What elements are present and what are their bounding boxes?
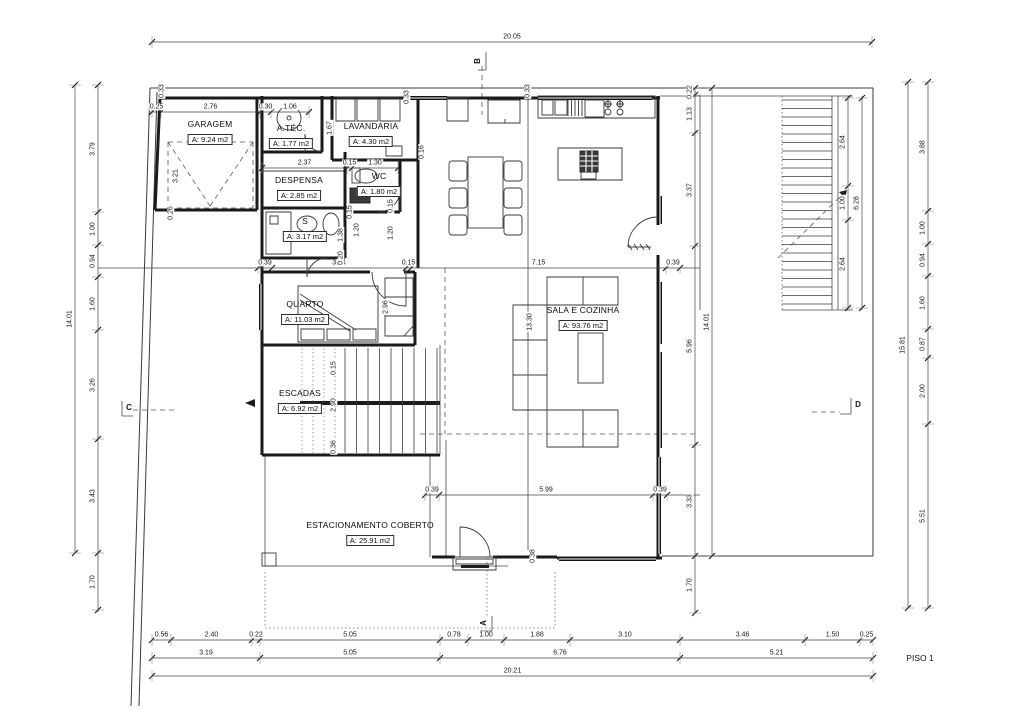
door-service: [307, 258, 327, 277]
dimension-label: 3.88: [919, 139, 926, 155]
dimension-label: 0.87: [919, 336, 926, 352]
room-name: WC: [357, 171, 401, 181]
door-entrance: [460, 527, 490, 557]
door-terrace: [628, 217, 658, 247]
fixtures-furniture: [245, 96, 847, 570]
dimension-label: 3.10: [617, 631, 633, 638]
room-area: A: 3.17 m2: [283, 231, 327, 242]
dimension-label: 2.40: [204, 631, 220, 638]
plot-boundary: [131, 88, 873, 706]
dimension-label: 0.36: [330, 439, 337, 455]
coffee-table: [578, 333, 603, 383]
dimension-label: 1.38: [337, 227, 344, 243]
dimension-label: 5.51: [919, 508, 926, 524]
dimension-label: 2.00: [919, 383, 926, 399]
room-label-escadas: ESCADASA: 6.92 m2: [278, 388, 322, 416]
room-area: A: 93.76 m2: [559, 320, 607, 331]
room-name: ESCADAS: [278, 388, 322, 398]
room-area: A: 9.24 m2: [188, 134, 232, 145]
dimension-label: 7.15: [531, 259, 547, 266]
room-name: A.TÉC.: [269, 123, 313, 133]
sheet-title: PISO 1: [906, 653, 933, 663]
dimension-label: 0.78: [446, 631, 462, 638]
section-marker-d: D: [854, 401, 862, 409]
dimension-label: 15.81: [899, 335, 906, 355]
room-label-quarto: QUARTOA: 11.03 m2: [281, 299, 329, 327]
dimension-label: 5.96: [686, 338, 693, 354]
dimension-label: 1.67: [326, 120, 333, 136]
dimension-label: 1.70: [89, 574, 96, 590]
dimension-label: 5.05: [342, 631, 358, 638]
room-name: ESTACIONAMENTO COBERTO: [306, 520, 434, 530]
dimension-label: 0.56: [154, 631, 170, 638]
entrance-step: [453, 557, 496, 570]
dimension-label: 14.01: [66, 309, 73, 329]
room-area: A: 4.30 m2: [349, 136, 393, 147]
room-area: A: 1.80 m2: [357, 186, 401, 197]
dimension-label: 0.22: [686, 84, 693, 100]
dimension-label: 1.00: [478, 631, 494, 638]
room-name: DESPENSA: [275, 175, 323, 185]
dimension-label: 1.50: [825, 631, 841, 638]
dimension-label: 1.20: [353, 222, 360, 238]
dimension-label: 1.13: [686, 106, 693, 122]
room-area: A: 11.03 m2: [281, 314, 329, 325]
dining-table: [468, 157, 503, 228]
dimension-label: 6.76: [552, 649, 568, 656]
dimension-label: 0.15: [342, 159, 358, 166]
room-label-wc: WCA: 1.80 m2: [357, 171, 401, 199]
dimension-label: 20.21: [503, 667, 523, 674]
dimension-label: 0.33: [158, 83, 165, 99]
dimension-label: 1.60: [89, 296, 96, 312]
dimension-label: 0.22: [248, 631, 264, 638]
dimension-label: 6.28: [853, 195, 860, 211]
dotted-lines: [265, 96, 782, 628]
room-name: S: [283, 216, 327, 226]
dimension-label: 0.39: [652, 486, 668, 493]
room-area: A: 25.91 m2: [346, 535, 394, 546]
room-area: A: 1.77 m2: [269, 138, 313, 149]
dimension-label: 2.96: [382, 299, 389, 315]
dimension-label: 0.15: [401, 259, 417, 266]
dimension-label: 3.26: [89, 377, 96, 393]
room-label-garagem: GARAGEMA: 9.24 m2: [188, 119, 233, 147]
dimension-label: 1.00: [919, 220, 926, 236]
dimension-label: 3.33: [686, 493, 693, 509]
dimension-label: 14.01: [703, 312, 710, 332]
dimension-label: 0.15: [387, 198, 394, 214]
sofa-set: [513, 277, 618, 447]
dimension-label: 3.43: [89, 488, 96, 504]
dimension-label: 0.26: [167, 205, 174, 221]
dimension-label: 0.39: [665, 259, 681, 266]
section-marker-a: A: [480, 619, 488, 627]
dimension-label: 0.39: [257, 259, 273, 266]
dimension-label: 0.25: [859, 631, 875, 638]
dimension-label: 20.05: [502, 33, 522, 40]
dimension-label: 1.20: [387, 225, 394, 241]
room-label-a-t-c: A.TÉC.A: 1.77 m2: [269, 123, 313, 151]
room-label-sala-e-cozinha: SALA E COZINHAA: 93.76 m2: [547, 305, 620, 333]
section-marker-c: C: [125, 404, 133, 412]
dimension-label: 1.88: [529, 631, 545, 638]
room-name: QUARTO: [281, 299, 329, 309]
dimension-label: 1.00: [89, 221, 96, 237]
room-label-lavandaria: LAVANDARIAA: 4.30 m2: [344, 121, 399, 149]
room-name: SALA E COZINHA: [547, 305, 620, 315]
room-label-estacionamento-coberto: ESTACIONAMENTO COBERTOA: 25.91 m2: [306, 520, 434, 548]
dimension-label: 1.60: [919, 295, 926, 311]
dimension-label: 0.30: [258, 103, 274, 110]
dashed-lines: [133, 66, 847, 434]
room-area: A: 2.85 m2: [277, 190, 321, 201]
dimension-label: 0.25: [149, 103, 165, 110]
dimension-label: 5.05: [342, 649, 358, 656]
dimension-label: 0.38: [529, 548, 536, 564]
dimension-label: 1.30: [367, 159, 383, 166]
dimension-label: 0.94: [919, 252, 926, 268]
dimension-label: 2.76: [203, 103, 219, 110]
dimension-label: 5.21: [769, 649, 785, 656]
dimension-label: 3.79: [89, 141, 96, 157]
section-marker-b: B: [474, 57, 482, 65]
dimension-label: 2.64: [839, 256, 846, 272]
room-label-s: SA: 3.17 m2: [283, 216, 327, 244]
dimension-label: 0.15: [330, 360, 337, 376]
dimension-label: 3.37: [686, 182, 693, 198]
dimension-label: 3.19: [198, 649, 214, 656]
dimension-label: 2.90: [330, 397, 337, 413]
dimension-label: 5.99: [538, 486, 554, 493]
room-area: A: 6.92 m2: [278, 403, 322, 414]
dimension-label: 2.64: [839, 134, 846, 150]
dimension-label: 0.33: [403, 89, 410, 105]
stove-icon: [604, 100, 624, 115]
dimension-label: 0.33: [524, 83, 531, 99]
dining-chairs: [449, 161, 522, 235]
dimension-label: 3.46: [735, 631, 751, 638]
dimension-label: 0.94: [89, 253, 96, 269]
dimension-label: 1.00: [839, 195, 846, 211]
column: [262, 553, 276, 566]
dimension-label: 3.21: [172, 168, 179, 184]
floor-plan-sheet: 20.050.252.760.301.062.370.151.300.393.7…: [0, 0, 1010, 720]
room-name: GARAGEM: [188, 119, 233, 129]
wall-units: [447, 98, 520, 123]
dimension-label: 0.15: [346, 204, 353, 220]
dimension-label: 0.20: [337, 250, 344, 266]
dimension-label: 0.39: [424, 486, 440, 493]
dimension-label: 2.37: [297, 159, 313, 166]
dimension-label: 13.30: [526, 312, 533, 332]
dimension-label: 1.06: [282, 103, 298, 110]
dimension-label: 1.70: [686, 577, 693, 593]
room-label-despensa: DESPENSAA: 2.85 m2: [275, 175, 323, 203]
room-name: LAVANDARIA: [344, 121, 399, 131]
dimension-label: 0.16: [418, 144, 425, 160]
